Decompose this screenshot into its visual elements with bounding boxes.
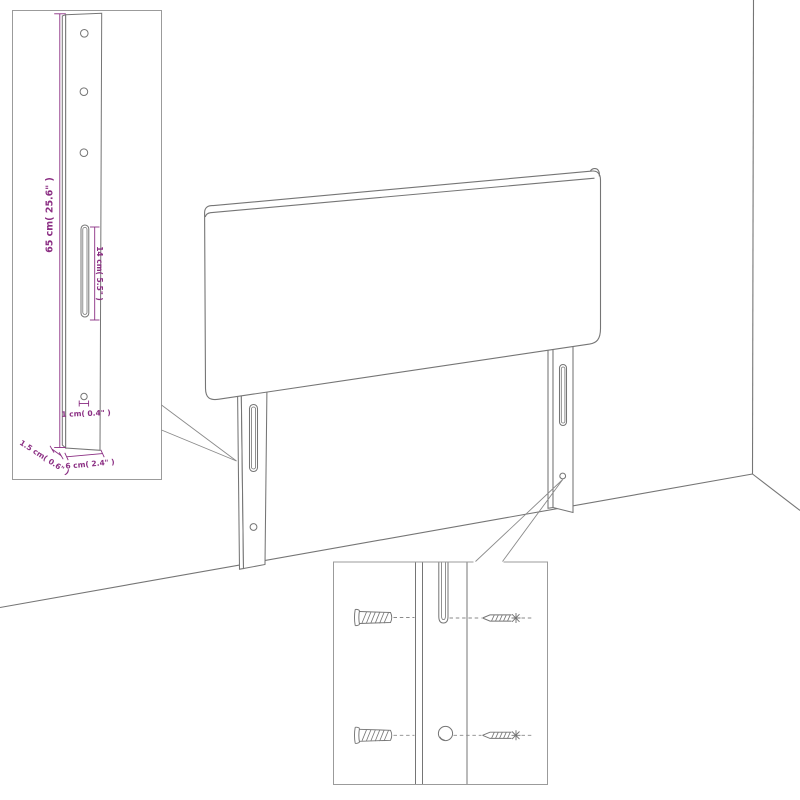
diagram-canvas: 65 cm( 25.6" ) 14 cm( 5.5" ) 1 cm( 0.4" … <box>0 0 800 800</box>
right-leg-hole <box>560 473 566 479</box>
bracket-callout-line-1 <box>162 405 237 461</box>
wall-corner-line <box>753 0 754 474</box>
dim-14-label: 14 cm( 5.5" ) <box>95 246 104 301</box>
headboard-panel <box>205 169 601 400</box>
dim-65-label: 65 cm( 25.6" ) <box>45 177 56 253</box>
bracket-hole-1 <box>81 30 89 38</box>
right-leg-side-face <box>548 340 553 508</box>
left-leg <box>238 383 268 569</box>
bracket-hole-3 <box>80 149 88 157</box>
bracket-callout-line-2 <box>162 430 237 461</box>
screw-head <box>512 613 521 623</box>
bracket-hole-2 <box>80 88 88 96</box>
floor-line-right <box>753 474 800 511</box>
headboard-panel-body <box>205 171 601 400</box>
bracket-drawing <box>62 13 101 450</box>
bracket-slot-inner <box>83 227 87 314</box>
left-leg-hole <box>250 524 257 531</box>
bracket-side-face <box>62 15 65 448</box>
product-diagram: 65 cm( 25.6" ) 14 cm( 5.5" ) 1 cm( 0.4" … <box>0 0 800 800</box>
bracket-callout-lines <box>162 405 237 461</box>
bracket-small-hole <box>81 393 87 399</box>
left-leg-slot-inner <box>251 407 255 469</box>
bracket-detail-inset: 65 cm( 25.6" ) 14 cm( 5.5" ) 1 cm( 0.4" … <box>13 11 162 480</box>
dim-1-label: 1 cm( 0.4" ) <box>61 408 111 419</box>
right-leg-slot-inner <box>561 367 565 423</box>
right-leg <box>548 338 573 513</box>
fastener-inset-background <box>334 562 548 785</box>
fastener-detail-inset <box>334 562 548 785</box>
screw-head <box>512 730 521 740</box>
hole-callout-line-2 <box>503 480 563 562</box>
